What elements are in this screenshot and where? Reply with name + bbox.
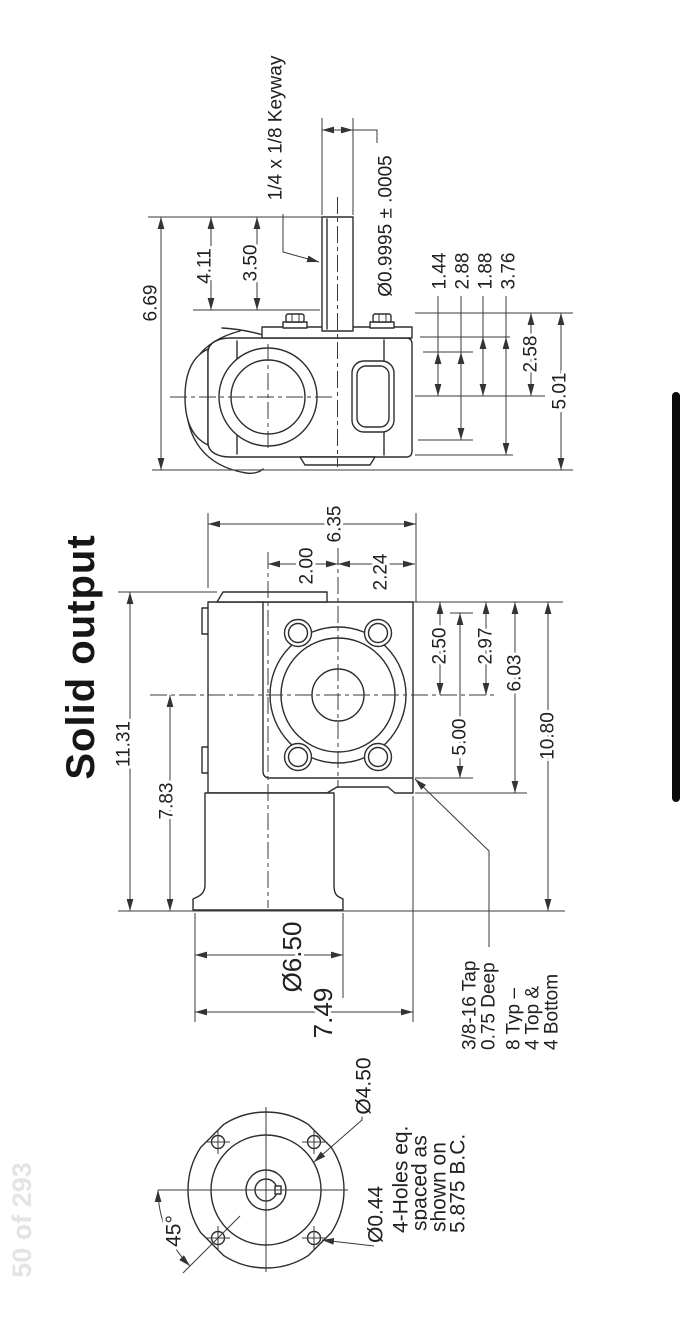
dim-2-97: 2.97 [476, 628, 497, 665]
dim-3-50: 3.50 [241, 245, 262, 282]
dim-3-76: 3.76 [499, 253, 520, 290]
dim-6-03: 6.03 [505, 655, 526, 692]
dim-2-24: 2.24 [371, 553, 392, 590]
dim-7-83: 7.83 [157, 783, 178, 820]
tap-note-line4: 4 Top & [523, 986, 544, 1050]
dim-2-58: 2.58 [521, 336, 542, 373]
catalog-page: 1/4 x 1/8 Keyway Ø0.9995 ± .0005 6.69 4.… [0, 0, 695, 1337]
bolt-left [283, 314, 307, 328]
dim-4-11: 4.11 [195, 248, 216, 284]
tap-note-line1: 3/8-16 Tap [460, 961, 481, 1050]
end-view: Ø4.50 45° Ø0.44 4-Holes eq. spaced as sh… [158, 1057, 470, 1273]
tap-note: 3/8-16 Tap 0.75 Deep 8 Typ – 4 Top & 4 B… [460, 961, 563, 1050]
dim-2-50: 2.50 [430, 628, 451, 665]
dim-5-01: 5.01 [550, 373, 571, 410]
dim-2-88: 2.88 [453, 253, 474, 290]
tap-note-line2: 0.75 Deep [479, 962, 500, 1050]
holes-note: Ø0.44 4-Holes eq. spaced as shown on 5.8… [365, 1126, 470, 1243]
technical-drawing: 1/4 x 1/8 Keyway Ø0.9995 ± .0005 6.69 4.… [0, 0, 695, 1337]
plug-cover-inner [357, 366, 389, 427]
scrollbar-thumb[interactable] [672, 392, 680, 802]
dim-6-35: 6.35 [325, 506, 346, 543]
page-title: Solid output [59, 534, 103, 779]
dim-6-50: Ø6.50 [277, 922, 307, 993]
shaft-dia-label: Ø0.9995 ± .0005 [376, 155, 397, 296]
tap-note-line5: 4 Bottom [542, 974, 563, 1050]
front-view: 6.35 2.00 2.24 2.50 2.97 5.00 6.03 10.80… [114, 506, 566, 1050]
dim-5-00: 5.00 [450, 719, 471, 756]
dim-4-50: Ø4.50 [353, 1057, 376, 1114]
dim-1-44: 1.44 [430, 252, 451, 289]
bolt-right [370, 314, 394, 328]
keyway-label: 1/4 x 1/8 Keyway [266, 55, 287, 200]
holes-note-line4: 5.875 B.C. [447, 1134, 470, 1233]
dim-11-31: 11.31 [114, 721, 135, 767]
dim-10-80: 10.80 [538, 712, 559, 760]
top-tab [217, 592, 327, 602]
dim-2-00: 2.00 [297, 548, 318, 585]
dim-6-69: 6.69 [141, 285, 162, 322]
dim-1-88: 1.88 [476, 253, 497, 290]
dim-7-49: 7.49 [308, 988, 338, 1039]
side-view: 1/4 x 1/8 Keyway Ø0.9995 ± .0005 6.69 4.… [141, 55, 574, 473]
dim-45-deg: 45° [163, 1215, 186, 1247]
cast-curve [222, 328, 263, 335]
page-number-watermark: 50 of 293 [7, 1162, 37, 1278]
tap-note-line3: 8 Typ – [504, 988, 525, 1050]
tap-note-leader [415, 779, 489, 947]
dim-0-44: Ø0.44 [365, 1185, 388, 1243]
